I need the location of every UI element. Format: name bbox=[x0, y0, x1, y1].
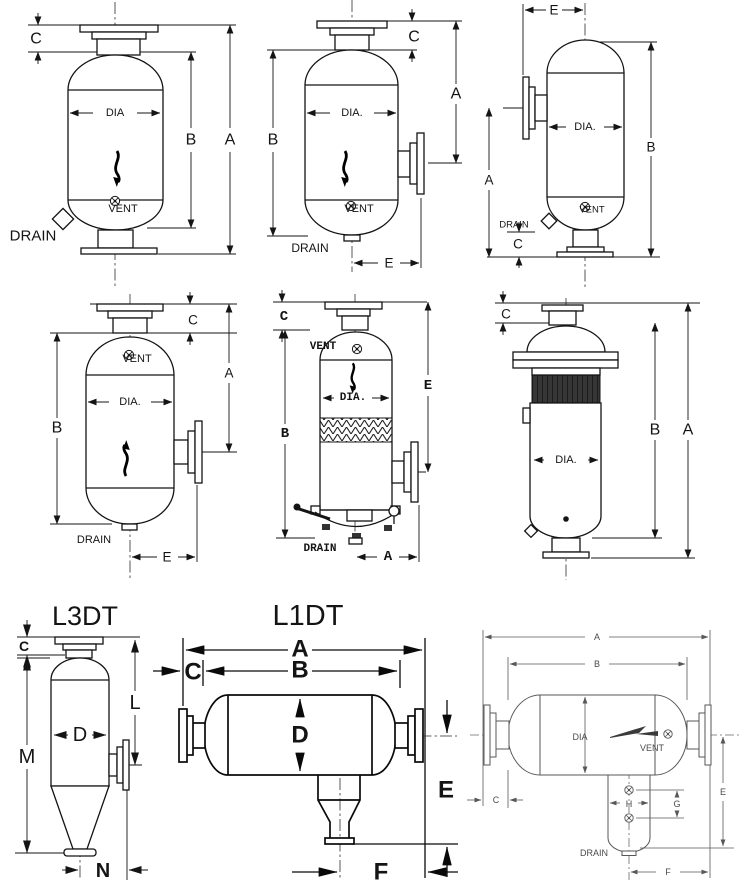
top-flange bbox=[542, 305, 583, 311]
bottom-flange-hub bbox=[567, 247, 604, 252]
top-flange bbox=[97, 304, 163, 311]
band-clamp bbox=[513, 352, 618, 360]
vent-label: VENT bbox=[122, 353, 152, 365]
dim-label-c: C bbox=[184, 659, 201, 686]
vessel bbox=[52, 25, 163, 254]
dim-label-e: E bbox=[424, 378, 432, 394]
dim-label-c: C bbox=[30, 31, 42, 48]
dim-label-b: B bbox=[52, 420, 63, 437]
side-nozzle-neck bbox=[392, 461, 404, 483]
top-nozzle-neck bbox=[113, 318, 147, 333]
left-nozzle-flange bbox=[179, 709, 187, 762]
panel-vertical-separator-2: C A B DIA. VENT DRAIN E bbox=[267, 0, 462, 272]
top-flange bbox=[317, 21, 387, 28]
side-stub bbox=[523, 408, 530, 423]
dim-label-c: C bbox=[408, 29, 420, 46]
side-nozzle-neck bbox=[535, 95, 547, 121]
top-nozzle-neck bbox=[335, 35, 369, 50]
vessel-shell bbox=[508, 695, 687, 775]
vent-label: VENT bbox=[344, 203, 374, 215]
drain-label: DRAIN bbox=[580, 848, 608, 858]
bottom-nozzle-neck bbox=[552, 538, 580, 552]
clamp-neck bbox=[532, 368, 600, 375]
dim-label-a: A bbox=[224, 366, 233, 381]
vessel bbox=[513, 305, 618, 558]
dim-label-a: A bbox=[225, 132, 236, 149]
drain-stub bbox=[349, 538, 362, 544]
drain-label: DRAIN bbox=[303, 543, 336, 555]
dia-label: DIA bbox=[572, 732, 587, 742]
head-dome bbox=[527, 326, 605, 352]
dim-label-e: E bbox=[384, 256, 393, 271]
dim-label-a: A bbox=[451, 86, 462, 103]
vessel bbox=[179, 695, 423, 844]
vessel bbox=[484, 695, 711, 856]
mesh-pad bbox=[320, 418, 392, 442]
side-nozzle-hub bbox=[410, 143, 417, 184]
vessel-shell bbox=[547, 40, 624, 230]
dim-label-a: A bbox=[683, 422, 694, 439]
right-nozzle-neck bbox=[395, 723, 408, 748]
bottom-flange bbox=[64, 849, 96, 856]
panel-vertical-separator-1: C B A DIA VENT DRAIN bbox=[10, 2, 236, 286]
side-nozzle-hub bbox=[529, 87, 535, 129]
left-nozzle-flange bbox=[484, 705, 490, 765]
right-nozzle-hub bbox=[408, 716, 415, 755]
dim-label-c: C bbox=[501, 307, 511, 322]
side-nozzle-flange bbox=[523, 77, 529, 139]
left-nozzle-hub bbox=[490, 713, 496, 757]
dim-label-b: B bbox=[650, 422, 661, 439]
vessel bbox=[320, 302, 418, 510]
dim-label-b: B bbox=[268, 132, 279, 149]
side-nozzle-hub bbox=[188, 431, 195, 473]
panel-horizontal-separator: A B DIA VENT H G DRAIN E C F bbox=[467, 630, 742, 880]
side-nozzle-flange bbox=[123, 740, 129, 790]
filter-band bbox=[532, 375, 600, 403]
side-nozzle-hub bbox=[117, 747, 123, 783]
bottom-flange bbox=[543, 552, 589, 558]
gauge-port-icon bbox=[625, 786, 633, 794]
vessel bbox=[86, 304, 202, 530]
right-nozzle-hub bbox=[699, 713, 705, 757]
panel-l1dt: L1DT A B C D E F bbox=[153, 600, 458, 886]
dim-label-g: G bbox=[673, 799, 680, 809]
drain-stub bbox=[344, 235, 360, 241]
dia-label: DIA. bbox=[340, 392, 366, 404]
drain-stub bbox=[622, 851, 636, 856]
dim-label-a: A bbox=[484, 173, 493, 188]
panel-vertical-separator-4: C A B VENT DIA. DRAIN E bbox=[50, 292, 237, 578]
top-flange-hub bbox=[108, 311, 152, 318]
bottom-flange bbox=[557, 252, 613, 257]
top-flange-hub bbox=[337, 309, 370, 316]
dim-label-c: C bbox=[493, 795, 500, 805]
dim-label-n: N bbox=[96, 860, 110, 882]
vent-label: VENT bbox=[310, 341, 337, 353]
side-nozzle-flange bbox=[195, 421, 202, 483]
left-nozzle-neck bbox=[192, 723, 205, 748]
vessel-shell bbox=[86, 337, 174, 524]
panel-filter-vessel: C B E VENT DIA. DRAIN A bbox=[273, 290, 432, 565]
dim-label-e: E bbox=[438, 777, 454, 804]
dim-label-b: B bbox=[186, 132, 197, 149]
side-nozzle-flange bbox=[411, 442, 418, 502]
dim-label-c: C bbox=[513, 237, 523, 252]
panel-filter-housing: C B A DIA. bbox=[495, 291, 700, 580]
bottom-nozzle-neck bbox=[98, 230, 133, 248]
top-flange bbox=[325, 302, 382, 309]
drain-stub bbox=[122, 524, 137, 530]
dia-label: DIA. bbox=[341, 107, 362, 119]
dim-label-b: B bbox=[291, 657, 308, 684]
dim-label-c: C bbox=[280, 309, 289, 325]
top-flange-hub bbox=[63, 644, 96, 650]
vessel bbox=[523, 40, 624, 257]
band-clamp-lower bbox=[513, 360, 618, 368]
top-flange-hub bbox=[330, 28, 374, 35]
dim-label-e: E bbox=[720, 787, 726, 797]
cone-bottom bbox=[51, 786, 109, 849]
top-flange bbox=[80, 25, 158, 32]
dim-label-a: A bbox=[594, 632, 600, 642]
drain-label: DRAIN bbox=[291, 241, 328, 255]
side-nozzle-neck bbox=[109, 754, 117, 776]
panel-title: L3DT bbox=[52, 601, 118, 631]
top-flange-hub bbox=[92, 32, 146, 39]
vent-icon bbox=[352, 344, 361, 353]
right-nozzle-neck bbox=[687, 721, 699, 749]
dim-label-e: E bbox=[549, 3, 558, 18]
drawing-sheet: C B A DIA VENT DRAIN C A B DIA. VENT DRA… bbox=[0, 0, 747, 892]
vent-icon bbox=[664, 730, 672, 738]
drain-label: DRAIN bbox=[77, 534, 111, 546]
dia-label: DIA. bbox=[574, 121, 595, 133]
dia-label: DIA bbox=[106, 107, 125, 119]
top-nozzle-neck bbox=[97, 39, 140, 55]
vent-label: VENT bbox=[579, 205, 605, 216]
dim-label-b: B bbox=[646, 140, 655, 155]
dim-label-d: D bbox=[291, 722, 308, 749]
dim-label-m: M bbox=[19, 746, 36, 768]
dia-label: DIA. bbox=[119, 396, 140, 408]
drain-label: DRAIN bbox=[10, 228, 57, 245]
right-nozzle-flange bbox=[705, 705, 711, 765]
vent-label: VENT bbox=[108, 203, 138, 215]
right-nozzle-flange bbox=[415, 709, 423, 762]
dia-label: DIA. bbox=[555, 454, 576, 466]
dim-label-c: C bbox=[188, 313, 198, 328]
dim-label-l: L bbox=[129, 692, 140, 714]
dim-label-h: H bbox=[626, 799, 633, 809]
panel-l3dt: L3DT C D L M N bbox=[15, 601, 148, 882]
panel-vertical-separator-3: E A B DIA. VENT DRAIN C bbox=[484, 3, 660, 289]
bottom-flange bbox=[81, 248, 157, 254]
drain-icon bbox=[52, 208, 73, 229]
gauge-port-icon bbox=[625, 814, 633, 822]
dim-label-f: F bbox=[665, 867, 671, 877]
dim-label-d: D bbox=[73, 724, 87, 746]
dim-label-e: E bbox=[162, 550, 171, 565]
drain-label: DRAIN bbox=[499, 220, 529, 231]
dim-label-c: C bbox=[19, 638, 29, 654]
top-nozzle-neck bbox=[342, 316, 368, 330]
side-nozzle-neck bbox=[398, 151, 410, 177]
top-flange bbox=[55, 637, 103, 644]
top-nozzle-neck bbox=[66, 650, 92, 658]
bottom-port bbox=[563, 516, 569, 522]
left-nozzle-neck bbox=[496, 721, 509, 749]
dim-label-b: B bbox=[281, 426, 290, 442]
vessel bbox=[51, 637, 129, 856]
side-nozzle-neck bbox=[174, 440, 188, 464]
dim-label-b: B bbox=[594, 659, 600, 669]
side-nozzle-flange bbox=[417, 133, 424, 194]
top-nozzle-neck bbox=[549, 311, 576, 325]
bottom-nozzle-neck bbox=[573, 230, 598, 247]
vessel-dimension-diagrams: C B A DIA VENT DRAIN C A B DIA. VENT DRA… bbox=[0, 0, 747, 892]
vent-label: VENT bbox=[640, 743, 665, 753]
vessel-shell bbox=[51, 658, 109, 786]
drain-funnel bbox=[318, 775, 360, 844]
panel-title: L1DT bbox=[273, 600, 344, 632]
side-nozzle-hub bbox=[404, 452, 411, 492]
dim-label-f: F bbox=[374, 859, 389, 886]
dim-label-a: A bbox=[384, 549, 393, 565]
